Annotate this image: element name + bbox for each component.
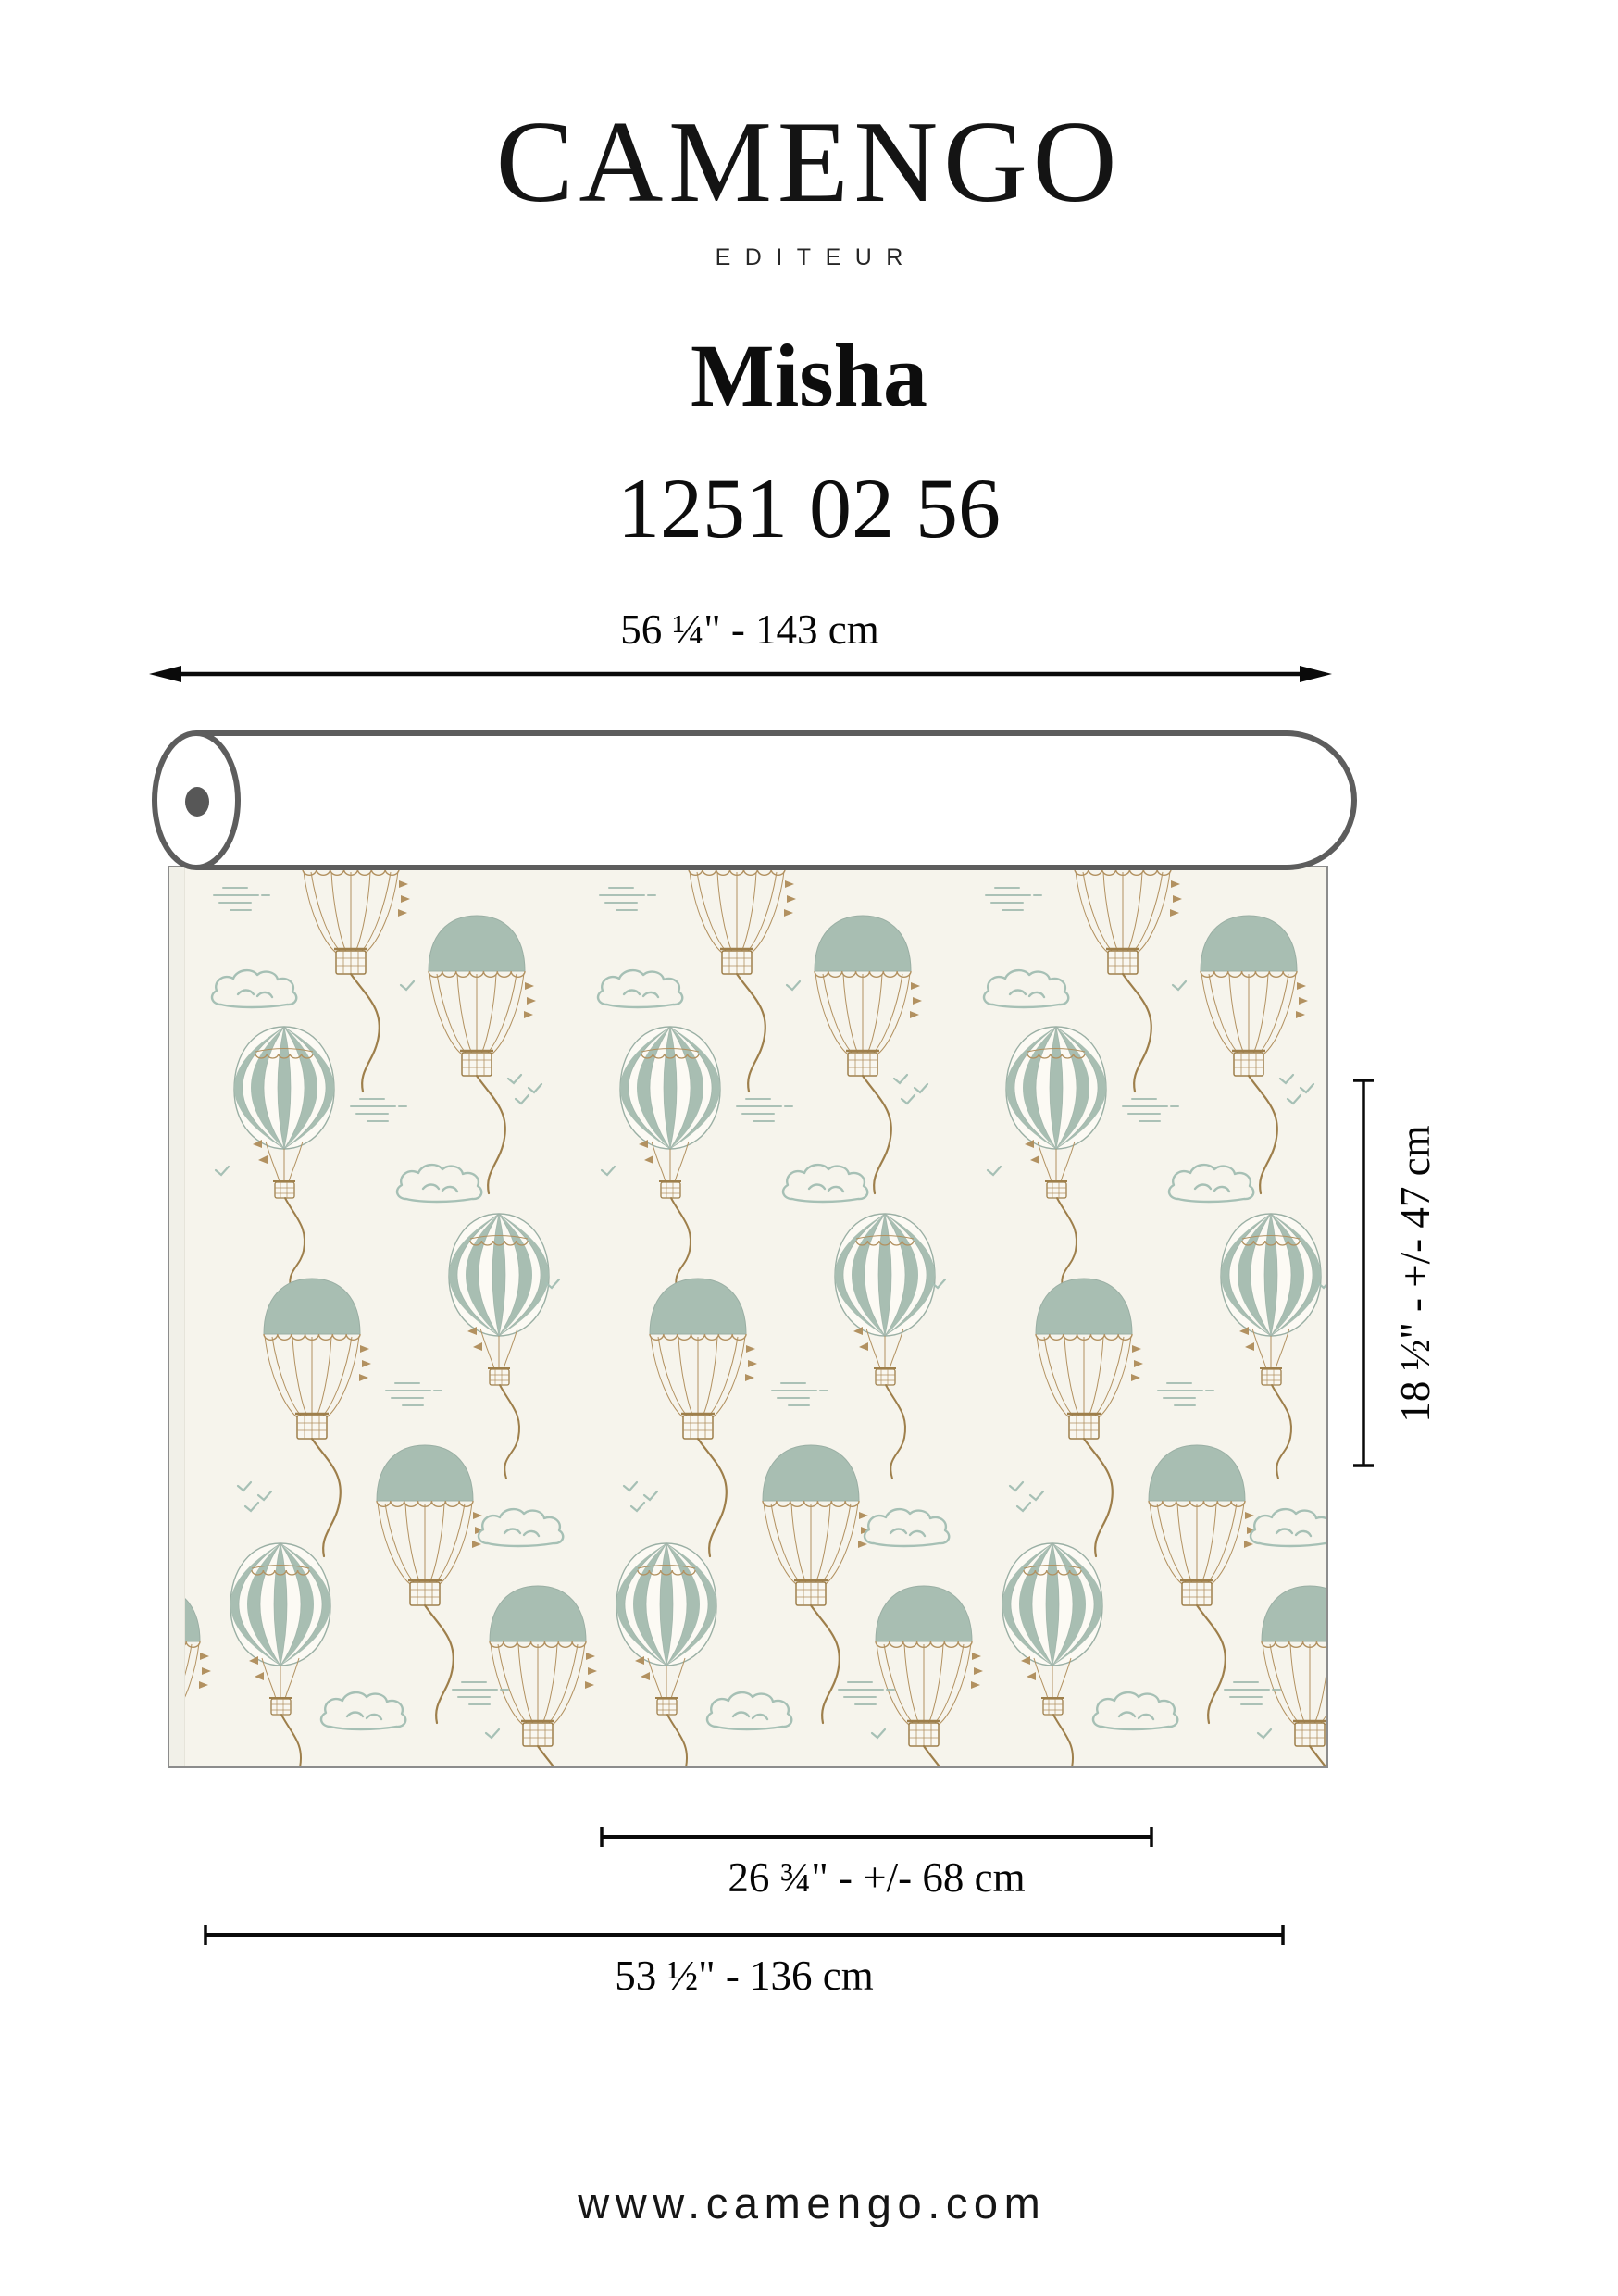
horizontal-repeat-label: 26 ¾" - +/- 68 cm	[599, 1853, 1154, 1902]
arrow-right-icon	[1300, 666, 1332, 682]
horizontal-repeat-line	[598, 1825, 1155, 1849]
vertical-repeat-label: 18 ½" - +/- 47 cm	[1391, 1070, 1434, 1478]
fabric-roll-illustration	[150, 728, 1363, 874]
vertical-repeat-line	[1350, 1075, 1376, 1471]
brand-tagline: EDITEUR	[0, 244, 1618, 271]
brand-logo: CAMENGO	[0, 96, 1618, 230]
roll-width-label: 56 ¼" - 143 cm	[287, 605, 1213, 654]
product-name: Misha	[0, 324, 1618, 427]
product-reference: 1251 02 56	[0, 459, 1618, 557]
fabric-selvage	[169, 867, 184, 1766]
fabric-swatch-pattern	[169, 867, 1326, 1766]
fabric-swatch	[168, 866, 1328, 1768]
arrow-left-icon	[149, 666, 181, 682]
fabric-width-label: 53 ½" - 136 cm	[281, 1952, 1207, 2000]
roll-core-icon	[185, 787, 209, 817]
website-url: www.camengo.com	[0, 2177, 1618, 2228]
roll-body	[196, 733, 1354, 867]
product-spec-sheet: CAMENGO EDITEUR Misha 1251 02 56 56 ¼" -…	[0, 0, 1618, 2296]
fabric-width-line	[202, 1923, 1287, 1947]
roll-width-arrow	[146, 662, 1335, 686]
